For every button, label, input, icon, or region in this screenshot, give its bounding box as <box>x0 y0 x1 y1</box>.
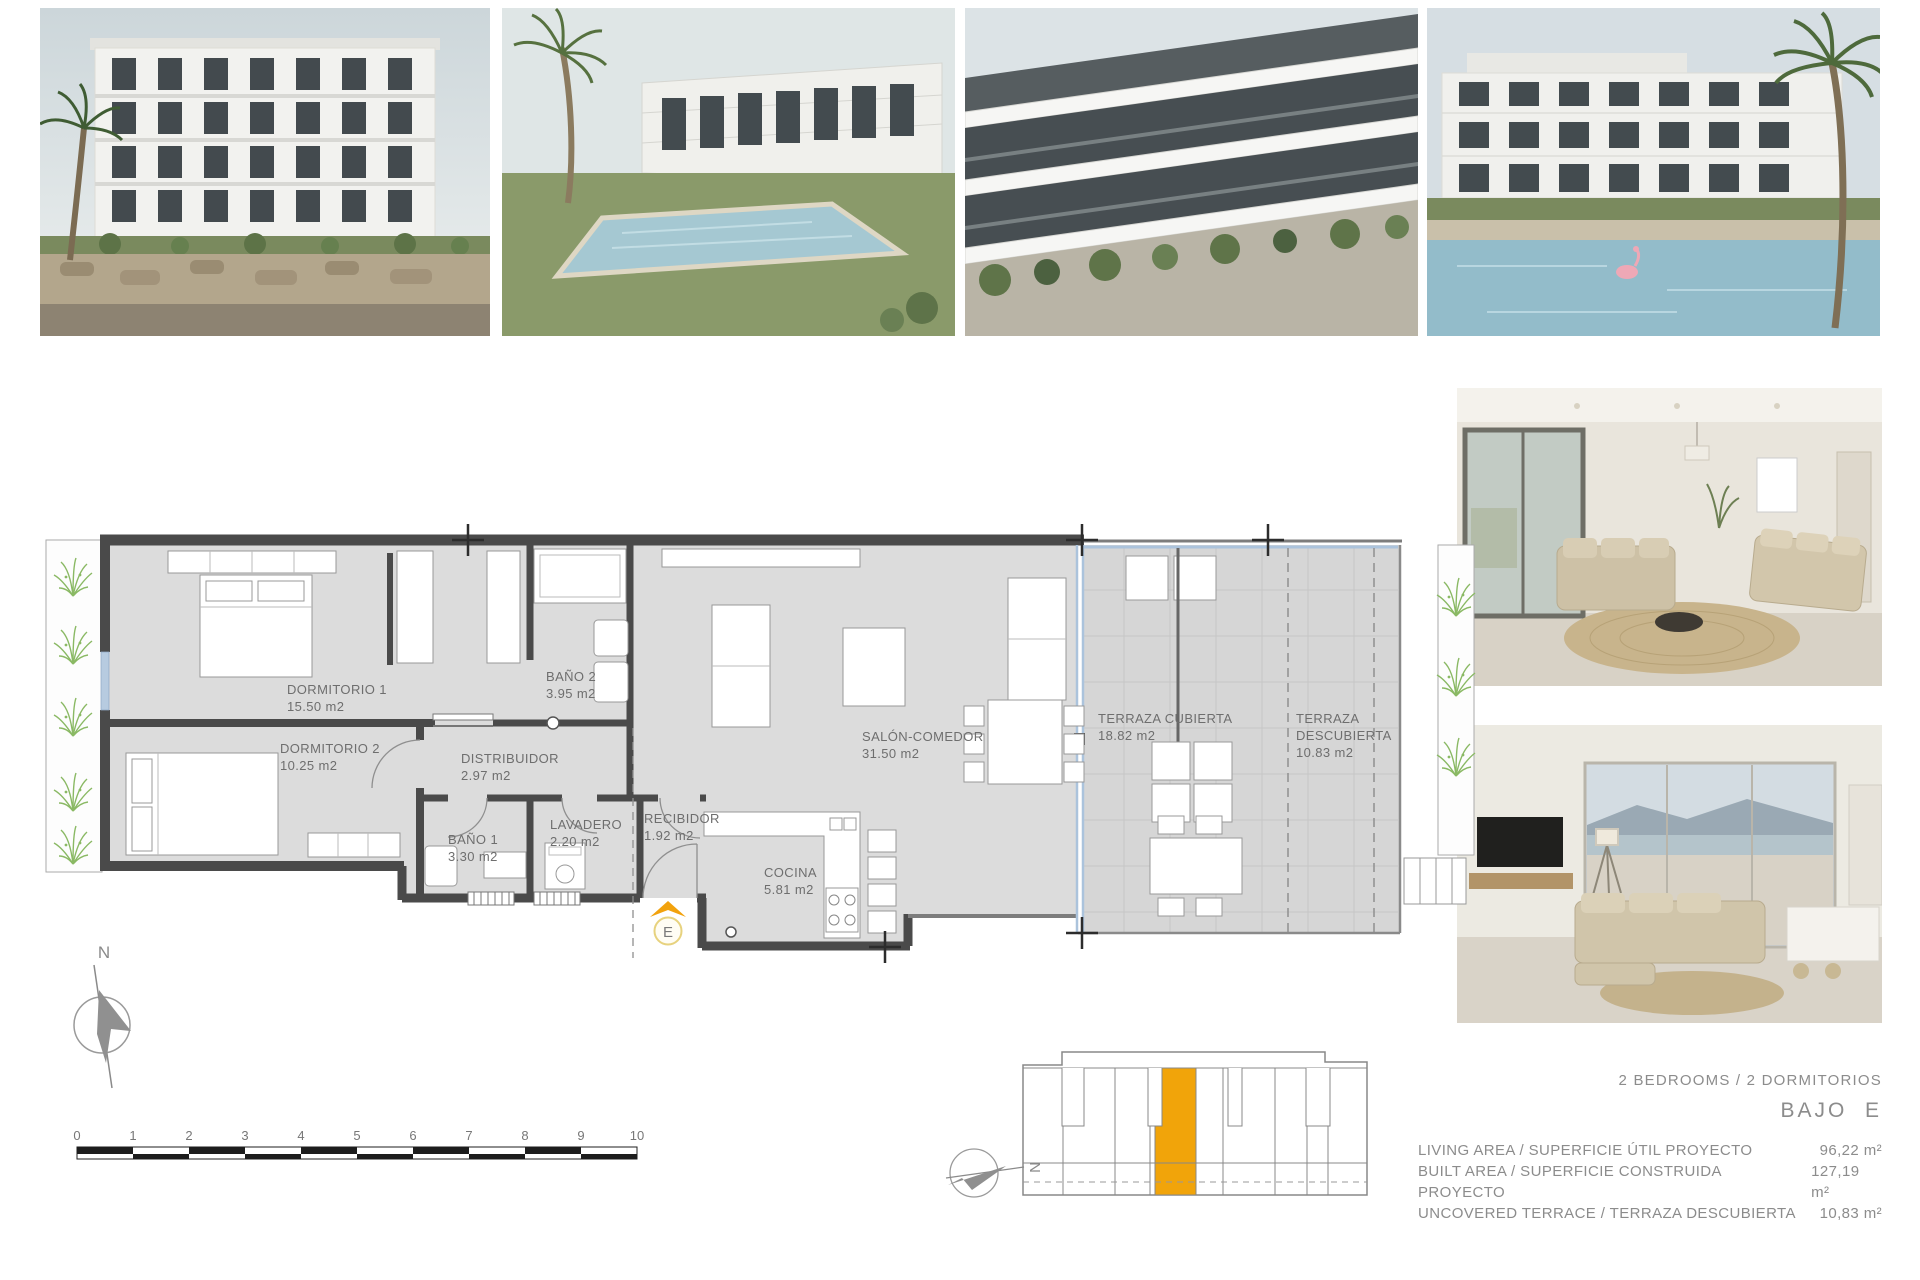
summary-table: LIVING AREA / SUPERFICIE ÚTIL PROYECTO 9… <box>1418 1140 1882 1224</box>
svg-text:1: 1 <box>129 1128 136 1143</box>
svg-text:10: 10 <box>630 1128 644 1143</box>
svg-text:0: 0 <box>73 1128 80 1143</box>
key-plan: N <box>946 1052 1367 1197</box>
room-label-terraza-descubierta: TERRAZADESCUBIERTA10.83 m2 <box>1296 710 1392 761</box>
room-label-bano-2: BAÑO 23.95 m2 <box>546 668 596 702</box>
room-label-bano-1: BAÑO 13.30 m2 <box>448 831 498 865</box>
room-label-salon-comedor: SALÓN-COMEDOR31.50 m2 <box>862 728 984 762</box>
summary-row-uncovered-terrace: UNCOVERED TERRACE / TERRAZA DESCUBIERTA … <box>1418 1203 1882 1224</box>
summary-row-built-area: BUILT AREA / SUPERFICIE CONSTRUIDA PROYE… <box>1418 1161 1882 1203</box>
summary-value: 96,22 m² <box>1820 1140 1882 1161</box>
scale-bar: 0 1 2 3 4 5 6 7 8 9 10 <box>73 1128 644 1159</box>
entrance-marker: E <box>650 901 686 945</box>
room-label-distribuidor: DISTRIBUIDOR2.97 m2 <box>461 750 559 784</box>
summary-row-living-area: LIVING AREA / SUPERFICIE ÚTIL PROYECTO 9… <box>1418 1140 1882 1161</box>
svg-text:8: 8 <box>521 1128 528 1143</box>
svg-text:6: 6 <box>409 1128 416 1143</box>
summary-value: 10,83 m² <box>1820 1203 1882 1224</box>
svg-text:9: 9 <box>577 1128 584 1143</box>
garden-strip-left <box>46 540 102 872</box>
room-label-dormitorio-2: DORMITORIO 210.25 m2 <box>280 740 380 774</box>
room-label-lavadero: LAVADERO2.20 m2 <box>550 816 622 850</box>
north-letter: N <box>98 943 110 962</box>
summary-label: LIVING AREA / SUPERFICIE ÚTIL PROYECTO <box>1418 1140 1752 1161</box>
room-label-terraza-cubierta: TERRAZA CUBIERTA18.82 m2 <box>1098 710 1233 744</box>
summary-value: 127,19 m² <box>1811 1161 1882 1203</box>
svg-text:5: 5 <box>353 1128 360 1143</box>
unit-label: BAJO E <box>1780 1099 1882 1123</box>
summary-label: BUILT AREA / SUPERFICIE CONSTRUIDA PROYE… <box>1418 1161 1811 1203</box>
svg-text:7: 7 <box>465 1128 472 1143</box>
room-label-recibidor: RECIBIDOR1.92 m2 <box>644 810 720 844</box>
svg-text:2: 2 <box>185 1128 192 1143</box>
svg-text:3: 3 <box>241 1128 248 1143</box>
room-label-dormitorio-1: DORMITORIO 115.50 m2 <box>287 681 387 715</box>
bedrooms-line: 2 BEDROOMS / 2 DORMITORIOS <box>1619 1072 1882 1089</box>
north-compass: N <box>74 943 131 1088</box>
entrance-letter: E <box>663 924 673 941</box>
room-label-cocina: COCINA5.81 m2 <box>764 864 817 898</box>
summary-label: UNCOVERED TERRACE / TERRAZA DESCUBIERTA <box>1418 1203 1796 1224</box>
key-plan-north-letter: N <box>1026 1162 1043 1173</box>
svg-text:4: 4 <box>297 1128 304 1143</box>
floor-plan-sheet: E N 0 1 2 3 4 5 6 7 8 9 10 <box>0 0 1920 1280</box>
garden-strip-right <box>1437 545 1475 855</box>
